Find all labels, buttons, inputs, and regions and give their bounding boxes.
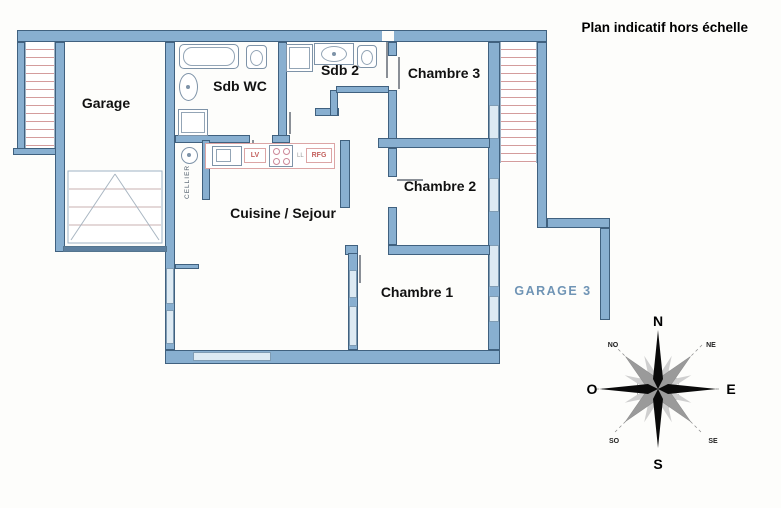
wall-sdb2-jog — [330, 90, 338, 116]
compass-so-label: SO — [609, 438, 620, 445]
window-chambre1-a — [489, 245, 499, 287]
wall-top — [17, 30, 547, 42]
bathtub-basin — [183, 47, 235, 66]
floor-plan-page: Plan indicatif hors échelle — [0, 0, 781, 508]
room-label-chambre-3: Chambre 3 — [394, 65, 494, 81]
wall-garage3-right — [600, 228, 610, 320]
driveway-hatch-left — [25, 42, 55, 148]
plan-title: Plan indicatif hors échelle — [581, 20, 748, 35]
sink-sdbwc-drain — [186, 85, 190, 89]
wall-wc-nook-bottom — [336, 86, 389, 93]
door-leaf-chambre1 — [359, 255, 361, 283]
toilet-sdbwc-bowl — [250, 50, 263, 66]
room-label-chambre-2: Chambre 2 — [390, 178, 490, 194]
dishwasher-icon: LV — [244, 148, 266, 163]
wall-sdbwc-bottom-a — [175, 135, 250, 143]
wall-sdbwc-bottom-b — [272, 135, 290, 143]
sink-sdb2-drain — [332, 52, 336, 56]
compass-n-label: N — [653, 313, 663, 329]
window-sejour-left-2 — [166, 310, 174, 344]
room-label-garage-3: GARAGE 3 — [503, 284, 603, 298]
window-chambre1-b — [489, 296, 499, 322]
room-label-sdb-2: Sdb 2 — [305, 62, 375, 78]
garage-door-icon — [67, 170, 163, 244]
door-leaf-sdb2 — [289, 112, 291, 134]
wall-sejour-stub — [175, 264, 199, 269]
compass-s-label: S — [653, 456, 662, 472]
window-sejour-left-1 — [166, 268, 174, 304]
door-opening-entry — [382, 31, 394, 41]
washing-machine-drum — [187, 153, 191, 157]
shower-sdbwc-tray — [181, 112, 205, 133]
window-chambre2 — [489, 178, 499, 212]
wall-outer-right — [537, 42, 547, 228]
wall-chambre3-left-b — [388, 90, 397, 145]
wall-left-strip — [17, 42, 25, 149]
compass-rose: N S E O NO NE SO SE — [585, 312, 745, 472]
room-label-chambre-1: Chambre 1 — [367, 284, 467, 300]
stove-icon — [269, 145, 293, 167]
door-chambre1-left-b — [349, 306, 357, 346]
wall-chambre3-bottom — [378, 138, 490, 148]
compass-ne-label: NE — [706, 342, 716, 349]
wall-hall-chambre2-a — [388, 148, 397, 177]
compass-e-label: E — [726, 381, 735, 397]
window-sejour-bottom — [193, 352, 271, 361]
garage-door-sill — [63, 246, 167, 252]
room-label-cuisine-sejour: Cuisine / Sejour — [203, 205, 363, 221]
wall-sejour-hall — [340, 140, 350, 208]
wall-chambre3-left-a — [388, 42, 397, 56]
compass-se-label: SE — [708, 438, 718, 445]
wall-garage3-top — [547, 218, 610, 228]
wall-garage-left — [55, 42, 65, 252]
kitchen-sink-basin — [216, 149, 231, 162]
fridge-icon: RFG — [306, 148, 332, 163]
driveway-hatch-right — [500, 42, 537, 163]
compass-no-label: NO — [608, 342, 619, 349]
room-label-cellier: CELLIER — [184, 165, 191, 199]
compass-o-label: O — [587, 381, 598, 397]
wall-chambre1-top-b — [388, 245, 490, 255]
door-chambre1-left-a — [349, 270, 357, 298]
window-chambre3 — [489, 105, 499, 139]
room-label-sdb-wc: Sdb WC — [200, 78, 280, 94]
wall-left-strip-cap — [13, 148, 59, 155]
room-label-garage: Garage — [56, 95, 156, 111]
washer-label: LL — [297, 153, 304, 159]
wall-hall-chambre2-b — [388, 207, 397, 245]
